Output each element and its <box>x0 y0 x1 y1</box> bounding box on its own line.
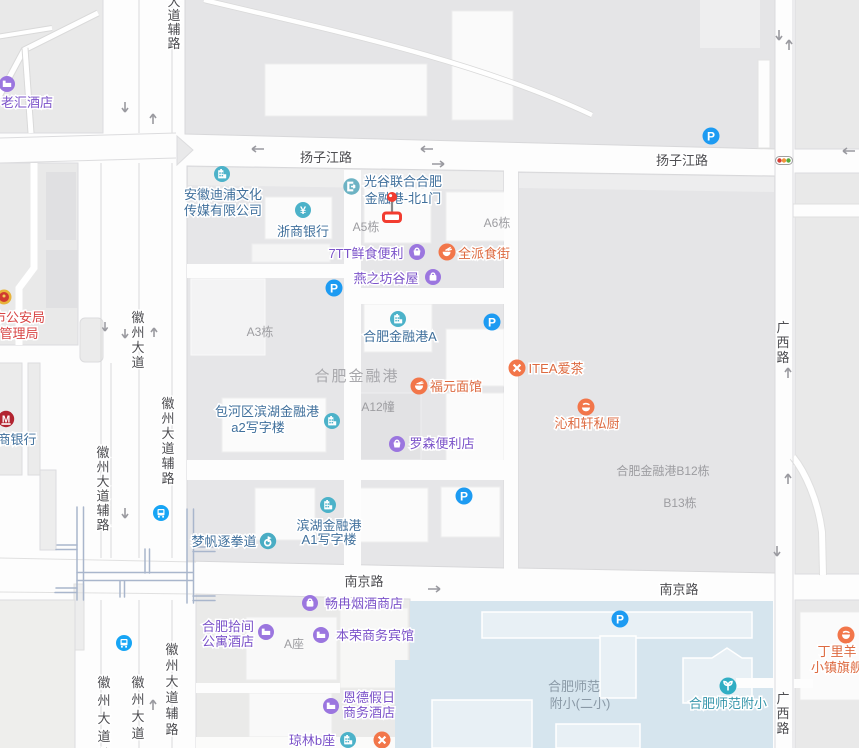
svg-text:合肥师范: 合肥师范 <box>548 679 600 694</box>
svg-text:合肥金融港: 合肥金融港 <box>314 368 399 385</box>
svg-text:P: P <box>460 490 468 504</box>
svg-text:徽州大道辅路: 徽州大道辅路 <box>165 642 178 737</box>
svg-text:合肥金融港B12栋: 合肥金融港B12栋 <box>616 463 709 478</box>
svg-text:徽州大道: 徽州大道 <box>131 310 144 370</box>
svg-text:燕之坊谷屋: 燕之坊谷屋 <box>353 271 418 286</box>
svg-text:广西路: 广西路 <box>776 320 789 365</box>
svg-text:福元面馆: 福元面馆 <box>430 379 482 394</box>
svg-text:本荣商务宾馆: 本荣商务宾馆 <box>336 628 414 643</box>
svg-text:大道辅路: 大道辅路 <box>167 0 180 51</box>
svg-text:畅冉烟酒商店: 畅冉烟酒商店 <box>325 596 403 611</box>
svg-text:徽州大道辅路: 徽州大道辅路 <box>97 675 110 748</box>
svg-text:管理局: 管理局 <box>0 326 39 341</box>
svg-text:A1写字楼: A1写字楼 <box>302 532 357 547</box>
svg-text:南京路: 南京路 <box>659 582 698 597</box>
svg-text:合肥金融港A: 合肥金融港A <box>363 329 437 344</box>
svg-text:传媒有限公司: 传媒有限公司 <box>184 203 262 218</box>
svg-text:P: P <box>330 282 338 296</box>
svg-text:A3栋: A3栋 <box>247 324 274 339</box>
svg-text:安徽迪浦文化: 安徽迪浦文化 <box>184 187 262 202</box>
svg-text:小镇旗舰: 小镇旗舰 <box>811 660 859 675</box>
svg-text:罗森便利店: 罗森便利店 <box>409 436 474 451</box>
svg-text:徽州大道辅路: 徽州大道辅路 <box>161 396 174 486</box>
svg-text:合肥拾间: 合肥拾间 <box>202 619 254 634</box>
svg-text:¥: ¥ <box>300 205 307 217</box>
svg-text:全派食街: 全派食街 <box>458 246 510 261</box>
svg-text:A6栋: A6栋 <box>484 215 511 230</box>
svg-text:老汇酒店: 老汇酒店 <box>1 95 53 110</box>
svg-text:金融港-北1门: 金融港-北1门 <box>365 191 442 206</box>
svg-text:琼林b座: 琼林b座 <box>289 733 335 748</box>
svg-text:市公安局: 市公安局 <box>0 310 45 325</box>
svg-text:a2写字楼: a2写字楼 <box>231 420 284 435</box>
svg-text:附小(二小): 附小(二小) <box>550 696 611 711</box>
svg-text:商银行: 商银行 <box>0 432 37 447</box>
svg-text:扬子江路: 扬子江路 <box>300 150 352 165</box>
svg-text:广西路: 广西路 <box>776 691 789 736</box>
svg-text:公寓酒店: 公寓酒店 <box>202 634 254 649</box>
svg-text:P: P <box>707 130 715 144</box>
svg-text:P: P <box>488 316 496 330</box>
svg-text:滨湖金融港: 滨湖金融港 <box>296 518 361 533</box>
svg-text:P: P <box>616 613 624 627</box>
svg-text:A座: A座 <box>284 636 304 651</box>
svg-text:A12幢: A12幢 <box>361 399 394 414</box>
svg-text:合肥师范附小: 合肥师范附小 <box>689 696 767 711</box>
svg-text:7TT鲜食便利: 7TT鲜食便利 <box>328 246 403 261</box>
svg-text:恩德假日: 恩德假日 <box>343 690 395 705</box>
svg-text:A5栋: A5栋 <box>353 219 380 234</box>
svg-text:沁和轩私厨: 沁和轩私厨 <box>554 416 619 431</box>
svg-text:光谷联合合肥: 光谷联合合肥 <box>364 174 442 189</box>
svg-text:包河区滨湖金融港: 包河区滨湖金融港 <box>215 404 319 419</box>
svg-text:南京路: 南京路 <box>344 574 383 589</box>
svg-text:浙商银行: 浙商银行 <box>277 224 329 239</box>
svg-text:徽州大道辅路: 徽州大道辅路 <box>96 445 109 533</box>
svg-text:商务酒店: 商务酒店 <box>343 705 395 720</box>
svg-text:ITEA爱茶: ITEA爱茶 <box>529 361 584 376</box>
svg-text:B13栋: B13栋 <box>663 495 696 510</box>
svg-text:扬子江路: 扬子江路 <box>656 153 708 168</box>
svg-text:梦帆逐拳道: 梦帆逐拳道 <box>191 534 256 549</box>
svg-text:丁里羊: 丁里羊 <box>817 644 856 659</box>
